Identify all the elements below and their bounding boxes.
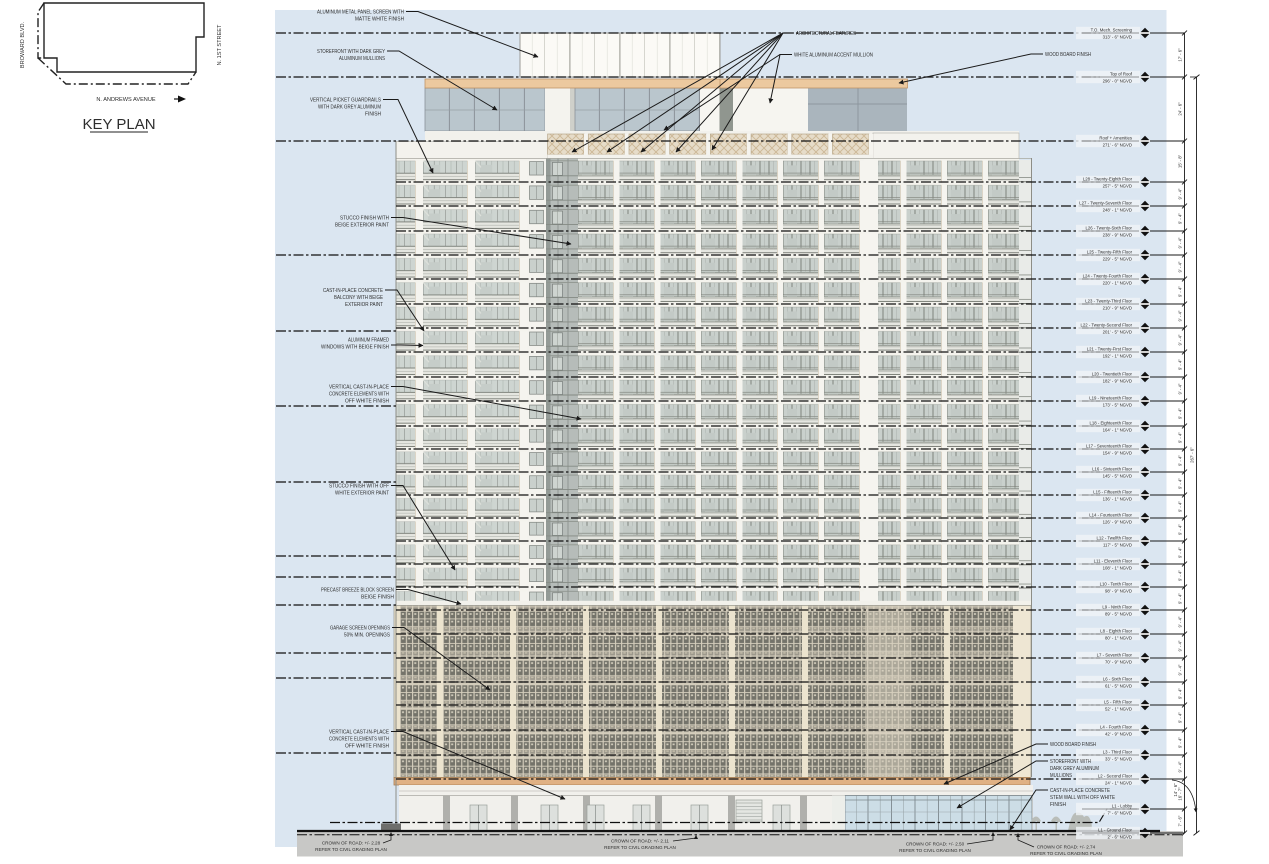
svg-text:98' - 9" NGVD: 98' - 9" NGVD: [1105, 588, 1132, 593]
svg-text:CONCRETE ELEMENTS WITH: CONCRETE ELEMENTS WITH: [329, 737, 389, 743]
svg-text:FINISH: FINISH: [1050, 802, 1066, 808]
svg-text:WITH DARK GREY ALUMINUM: WITH DARK GREY ALUMINUM: [318, 105, 381, 111]
svg-text:STEM WALL WITH OFF WHITE: STEM WALL WITH OFF WHITE: [1050, 795, 1115, 801]
svg-text:173' - 5" NGVD: 173' - 5" NGVD: [1103, 402, 1132, 407]
svg-text:7' - 6": 7' - 6": [1177, 815, 1182, 826]
svg-text:9' - 4": 9' - 4": [1177, 334, 1182, 345]
svg-text:182' - 9" NGVD: 182' - 9" NGVD: [1103, 378, 1132, 383]
svg-text:9' - 4": 9' - 4": [1177, 383, 1182, 394]
svg-text:L5 - Fifth Floor: L5 - Fifth Floor: [1104, 699, 1133, 704]
svg-text:9' - 4": 9' - 4": [1177, 286, 1182, 297]
svg-text:154' - 9" NGVD: 154' - 9" NGVD: [1103, 450, 1132, 455]
svg-text:9' - 4": 9' - 4": [1177, 712, 1182, 723]
svg-text:9' - 4": 9' - 4": [1177, 310, 1182, 321]
svg-text:296' - 0" NGVD: 296' - 0" NGVD: [1103, 78, 1132, 83]
svg-text:210' - 9" NGVD: 210' - 9" NGVD: [1103, 305, 1132, 310]
svg-text:DARK GREY ALUMINUM: DARK GREY ALUMINUM: [1050, 766, 1099, 772]
svg-text:9' - 4": 9' - 4": [1177, 761, 1182, 772]
svg-text:REFER TO CIVIL GRADING PLAN: REFER TO CIVIL GRADING PLAN: [604, 845, 676, 850]
svg-text:T.O. Mech. Screening: T.O. Mech. Screening: [1091, 27, 1133, 32]
svg-text:ALUMINUM FRAMED: ALUMINUM FRAMED: [348, 338, 389, 344]
svg-text:L9 - Ninth Floor: L9 - Ninth Floor: [1102, 604, 1132, 609]
svg-text:L7 - Seventh Floor: L7 - Seventh Floor: [1097, 652, 1133, 657]
svg-text:VERTICAL PICKET GUARDRAILS: VERTICAL PICKET GUARDRAILS: [310, 98, 381, 104]
svg-text:STUCCO FINISH WITH: STUCCO FINISH WITH: [340, 216, 389, 222]
svg-text:MULLIONS: MULLIONS: [1050, 773, 1072, 779]
svg-text:L27 - Twenty-Seventh Floor: L27 - Twenty-Seventh Floor: [1079, 200, 1132, 205]
svg-text:ALUMINUM MULLIONS: ALUMINUM MULLIONS: [339, 56, 385, 62]
svg-text:9' - 4": 9' - 4": [1177, 737, 1182, 748]
svg-text:L24 - Twenty-Fourth Floor: L24 - Twenty-Fourth Floor: [1083, 273, 1133, 278]
svg-text:9' - 4": 9' - 4": [1177, 237, 1182, 248]
svg-text:L1 - Lobby: L1 - Lobby: [1112, 803, 1133, 808]
svg-text:BEIGE FINISH: BEIGE FINISH: [361, 595, 394, 601]
svg-text:52' - 1" NGVD: 52' - 1" NGVD: [1105, 706, 1132, 711]
svg-text:248' - 1" NGVD: 248' - 1" NGVD: [1103, 207, 1132, 212]
svg-text:9' - 4": 9' - 4": [1177, 616, 1182, 627]
svg-text:L15 - Fifteenth Floor: L15 - Fifteenth Floor: [1093, 489, 1132, 494]
svg-text:9' - 4": 9' - 4": [1177, 188, 1182, 199]
svg-text:L4 - Fourth Floor: L4 - Fourth Floor: [1100, 724, 1133, 729]
svg-text:L21 - Twenty-First Floor: L21 - Twenty-First Floor: [1087, 346, 1133, 351]
svg-text:N. ANDREWS AVENUE: N. ANDREWS AVENUE: [96, 97, 156, 103]
svg-text:164' - 1" NGVD: 164' - 1" NGVD: [1103, 427, 1132, 432]
svg-text:EXTERIOR PAINT: EXTERIOR PAINT: [345, 302, 384, 308]
svg-text:PRECAST BREEZE BLOCK SCREEN: PRECAST BREEZE BLOCK SCREEN: [321, 588, 394, 594]
svg-text:14' - 6": 14' - 6": [1173, 783, 1178, 797]
svg-text:9' - 4": 9' - 4": [1177, 524, 1182, 535]
svg-text:L22 - Twenty-Second Floor: L22 - Twenty-Second Floor: [1080, 322, 1132, 327]
svg-text:220' - 1" NGVD: 220' - 1" NGVD: [1103, 280, 1132, 285]
svg-text:7' - 6" NGVD: 7' - 6" NGVD: [1107, 810, 1132, 815]
svg-text:L8 - Eighth Floor: L8 - Eighth Floor: [1100, 628, 1132, 633]
svg-text:L3 - Third Floor: L3 - Third Floor: [1103, 749, 1133, 754]
svg-text:9' - 4": 9' - 4": [1177, 359, 1182, 370]
svg-text:L14 - Fourteenth Floor: L14 - Fourteenth Floor: [1089, 512, 1132, 517]
svg-text:CROWN OF ROAD: +/- 2.28: CROWN OF ROAD: +/- 2.28: [322, 841, 381, 846]
svg-text:BALCONY WITH BEIGE: BALCONY WITH BEIGE: [334, 295, 383, 301]
svg-text:9' - 4": 9' - 4": [1177, 432, 1182, 443]
svg-text:9' - 4": 9' - 4": [1177, 213, 1182, 224]
svg-text:33' - 5" NGVD: 33' - 5" NGVD: [1105, 756, 1132, 761]
svg-text:L25 - Twenty-Fifth Floor: L25 - Twenty-Fifth Floor: [1087, 249, 1133, 254]
svg-text:WOOD BOARD FINISH: WOOD BOARD FINISH: [1050, 742, 1096, 748]
svg-text:WINDOWS WITH BEIGE FINISH: WINDOWS WITH BEIGE FINISH: [321, 345, 389, 351]
svg-text:ALUMINUM METAL PANEL SCREEN WI: ALUMINUM METAL PANEL SCREEN WITH: [317, 10, 404, 16]
svg-text:24' - 6": 24' - 6": [1177, 102, 1182, 116]
svg-text:9' - 4": 9' - 4": [1177, 408, 1182, 419]
svg-text:REFER TO CIVIL GRADING PLAN: REFER TO CIVIL GRADING PLAN: [899, 848, 971, 853]
svg-text:BEIGE EXTERIOR PAINT: BEIGE EXTERIOR PAINT: [335, 223, 390, 229]
svg-text:9' - 4": 9' - 4": [1177, 688, 1182, 699]
svg-text:238' - 9" NGVD: 238' - 9" NGVD: [1103, 232, 1132, 237]
svg-text:CAST-IN-PLACE CONCRETE: CAST-IN-PLACE CONCRETE: [1050, 788, 1110, 794]
svg-text:89' - 5" NGVD: 89' - 5" NGVD: [1105, 611, 1132, 616]
svg-text:80' - 1" NGVD: 80' - 1" NGVD: [1105, 635, 1132, 640]
svg-text:9' - 4": 9' - 4": [1177, 261, 1182, 272]
svg-text:CONCRETE ELEMENTS WITH: CONCRETE ELEMENTS WITH: [329, 392, 389, 398]
svg-text:WHITE EXTERIOR PAINT: WHITE EXTERIOR PAINT: [335, 491, 390, 497]
svg-text:ARCHITECTURAL FEATURES: ARCHITECTURAL FEATURES: [796, 31, 856, 37]
svg-text:Roof + Amenities: Roof + Amenities: [1099, 135, 1132, 140]
svg-text:WHITE ALUMINUM ACCENT MULLION: WHITE ALUMINUM ACCENT MULLION: [794, 53, 873, 59]
svg-text:L16 - Sixteenth Floor: L16 - Sixteenth Floor: [1092, 466, 1132, 471]
svg-text:L12 - Twelfth Floor: L12 - Twelfth Floor: [1096, 535, 1132, 540]
svg-text:201' - 5" NGVD: 201' - 5" NGVD: [1103, 329, 1132, 334]
svg-text:CAST-IN-PLACE CONCRETE: CAST-IN-PLACE CONCRETE: [323, 288, 383, 294]
svg-text:REFER TO CIVIL GRADING PLAN: REFER TO CIVIL GRADING PLAN: [1030, 851, 1102, 856]
svg-text:117' - 5" NGVD: 117' - 5" NGVD: [1103, 542, 1132, 547]
svg-text:L10 - Tenth Floor: L10 - Tenth Floor: [1100, 581, 1133, 586]
svg-text:9' - 4": 9' - 4": [1177, 455, 1182, 466]
svg-text:126' - 9" NGVD: 126' - 9" NGVD: [1103, 519, 1132, 524]
svg-text:STOREFRONT WITH: STOREFRONT WITH: [1050, 759, 1091, 765]
svg-text:9' - 4": 9' - 4": [1177, 570, 1182, 581]
svg-text:REFER TO CIVIL GRADING PLAN: REFER TO CIVIL GRADING PLAN: [315, 847, 387, 852]
svg-text:OFF WHITE FINISH: OFF WHITE FINISH: [345, 744, 389, 750]
svg-text:STOREFRONT WITH DARK GREY: STOREFRONT WITH DARK GREY: [317, 49, 385, 55]
svg-text:L11 - Eleventh Floor: L11 - Eleventh Floor: [1094, 558, 1133, 563]
svg-text:271' - 6" NGVD: 271' - 6" NGVD: [1103, 142, 1132, 147]
svg-text:145' - 5" NGVD: 145' - 5" NGVD: [1103, 473, 1132, 478]
svg-text:FINISH: FINISH: [365, 112, 381, 118]
svg-text:2' - 6" NGVD: 2' - 6" NGVD: [1107, 834, 1132, 839]
svg-text:BROWARD BLVD.: BROWARD BLVD.: [20, 21, 26, 68]
svg-text:L18 - Eighteenth Floor: L18 - Eighteenth Floor: [1089, 420, 1132, 425]
svg-text:STUCCO FINISH WITH OFF: STUCCO FINISH WITH OFF: [329, 484, 390, 490]
svg-text:N. 1ST STREET: N. 1ST STREET: [217, 24, 223, 66]
svg-text:VERTICAL CAST-IN-PLACE: VERTICAL CAST-IN-PLACE: [329, 730, 389, 736]
svg-text:CROWN OF ROAD: +/- 2.11: CROWN OF ROAD: +/- 2.11: [611, 839, 669, 844]
svg-text:42' - 9" NGVD: 42' - 9" NGVD: [1105, 731, 1132, 736]
svg-text:L17 - Seventeenth Floor: L17 - Seventeenth Floor: [1086, 443, 1133, 448]
svg-text:61' - 5" NGVD: 61' - 5" NGVD: [1105, 683, 1132, 688]
svg-text:9' - 4": 9' - 4": [1177, 478, 1182, 489]
svg-text:17' - 6": 17' - 6": [1177, 48, 1182, 62]
svg-text:L26 - Twenty-Sixth Floor: L26 - Twenty-Sixth Floor: [1086, 225, 1133, 230]
svg-text:L6 - Sixth Floor: L6 - Sixth Floor: [1103, 676, 1133, 681]
svg-text:MATTE WHITE FINISH: MATTE WHITE FINISH: [355, 17, 404, 23]
svg-text:136' - 1" NGVD: 136' - 1" NGVD: [1103, 496, 1132, 501]
svg-text:GARAGE SCREEN OPENINGS: GARAGE SCREEN OPENINGS: [330, 626, 390, 632]
svg-text:257' - 5" NGVD: 257' - 5" NGVD: [1103, 183, 1132, 188]
svg-text:229' - 5" NGVD: 229' - 5" NGVD: [1103, 256, 1132, 261]
svg-text:WOOD BOARD FINISH: WOOD BOARD FINISH: [1045, 52, 1091, 58]
svg-text:L19 - Nineteenth Floor: L19 - Nineteenth Floor: [1089, 395, 1132, 400]
svg-text:9' - 4": 9' - 4": [1177, 501, 1182, 512]
svg-text:Top of Roof: Top of Roof: [1110, 71, 1133, 76]
svg-text:L20 - Twentieth Floor: L20 - Twentieth Floor: [1092, 371, 1133, 376]
svg-text:L1 - Ground Floor: L1 - Ground Floor: [1098, 827, 1132, 832]
svg-text:192' - 1" NGVD: 192' - 1" NGVD: [1103, 353, 1132, 358]
svg-text:L28 - Twenty-Eighth Floor: L28 - Twenty-Eighth Floor: [1083, 176, 1133, 181]
svg-text:9' - 4": 9' - 4": [1177, 593, 1182, 604]
svg-text:9' - 4": 9' - 4": [1177, 547, 1182, 558]
svg-text:24' - 1" NGVD: 24' - 1" NGVD: [1105, 780, 1132, 785]
svg-text:L23 - Twenty-Third Floor: L23 - Twenty-Third Floor: [1085, 298, 1132, 303]
svg-text:KEY PLAN: KEY PLAN: [82, 116, 155, 133]
svg-text:313' - 6" NGVD: 313' - 6" NGVD: [1103, 34, 1132, 39]
svg-text:15' - 8": 15' - 8": [1177, 154, 1182, 168]
svg-text:L2 - Second Floor: L2 - Second Floor: [1098, 773, 1133, 778]
svg-text:OFF WHITE FINISH: OFF WHITE FINISH: [345, 399, 389, 405]
svg-text:50% MIN. OPENINGS: 50% MIN. OPENINGS: [344, 633, 390, 639]
svg-text:16' - 7": 16' - 7": [1177, 787, 1182, 801]
svg-text:70' - 9" NGVD: 70' - 9" NGVD: [1105, 659, 1132, 664]
svg-text:9' - 4": 9' - 4": [1177, 640, 1182, 651]
svg-text:108' - 1" NGVD: 108' - 1" NGVD: [1103, 565, 1132, 570]
svg-text:VERTICAL CAST-IN-PLACE: VERTICAL CAST-IN-PLACE: [329, 385, 389, 391]
svg-text:267' - 6": 267' - 6": [1189, 447, 1194, 463]
svg-text:CROWN OF ROAD: +/- 2.50: CROWN OF ROAD: +/- 2.50: [906, 842, 965, 847]
svg-text:9' - 4": 9' - 4": [1177, 664, 1182, 675]
svg-text:CROWN OF ROAD: +/- 2.74: CROWN OF ROAD: +/- 2.74: [1037, 845, 1096, 850]
